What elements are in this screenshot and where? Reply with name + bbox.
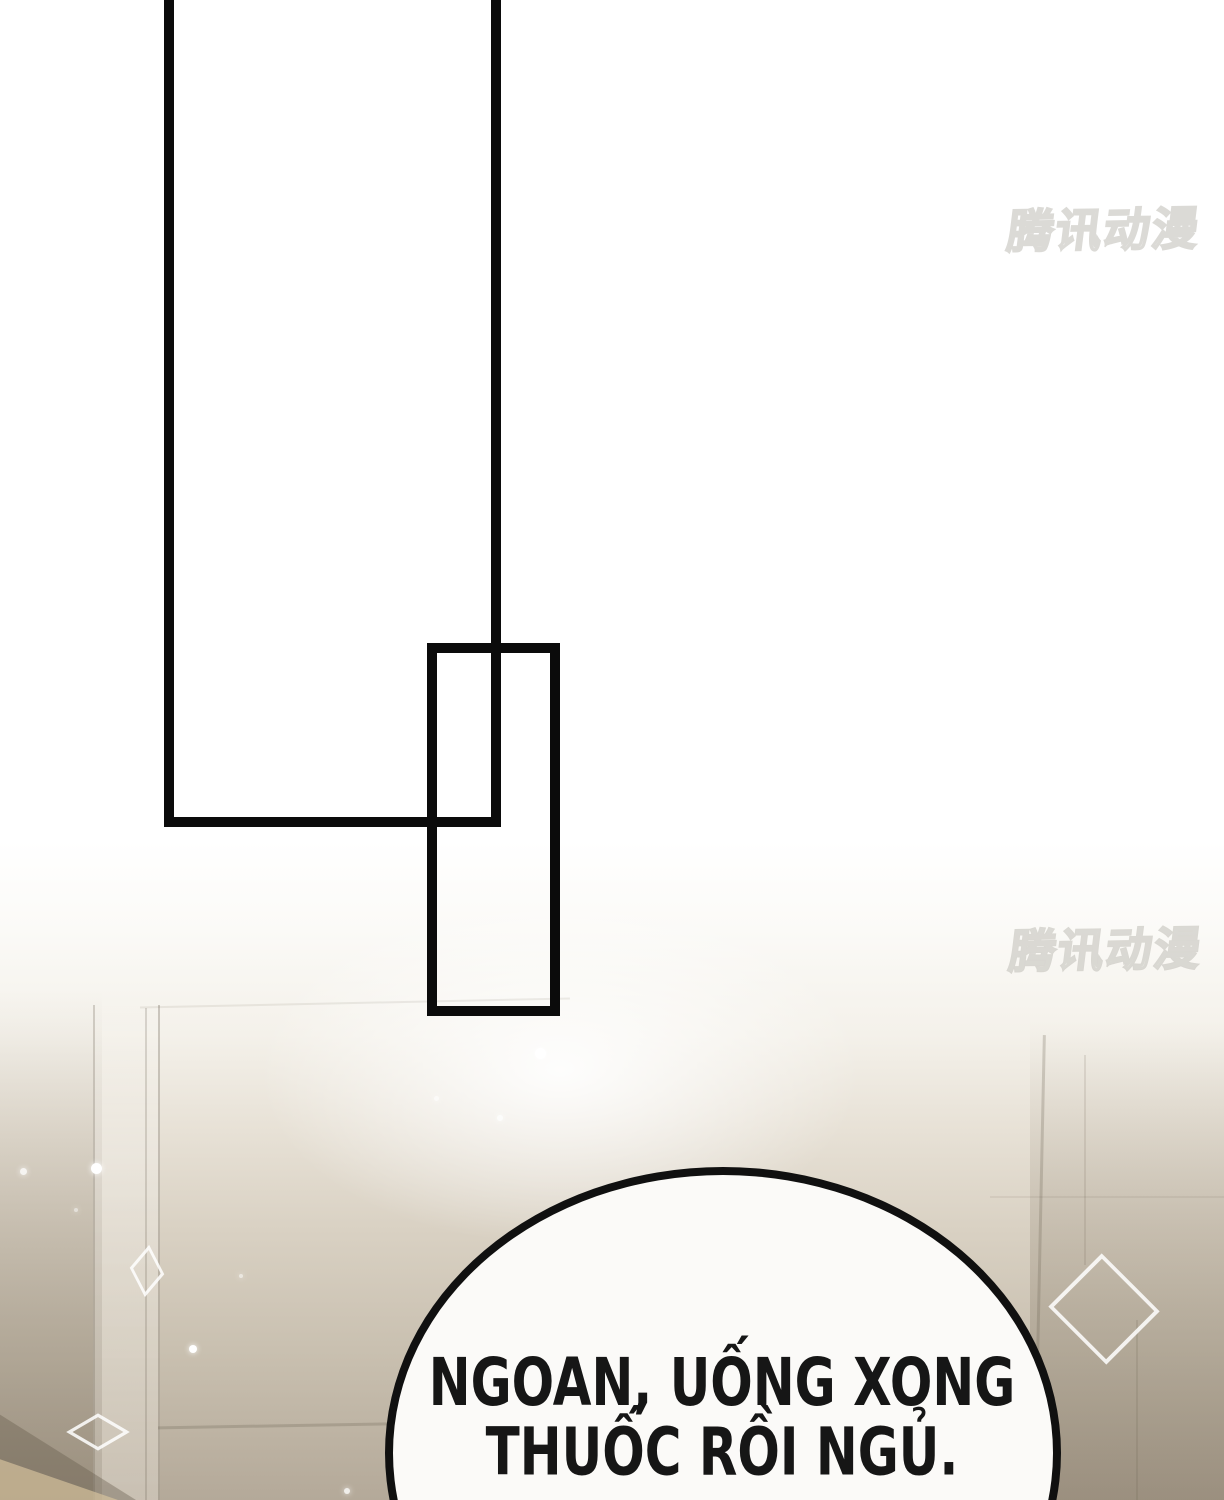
sparkle-dot bbox=[434, 1096, 439, 1101]
sparkle-dot bbox=[344, 1488, 350, 1494]
publisher-watermark: 腾讯动漫 bbox=[1004, 198, 1212, 261]
wall-seam-line bbox=[990, 1196, 1224, 1198]
sparkle-dot bbox=[74, 1208, 78, 1212]
sparkle-dot bbox=[239, 1274, 243, 1278]
sparkle-dot bbox=[91, 1163, 102, 1174]
publisher-watermark: 腾讯动漫 bbox=[1006, 918, 1214, 981]
speech-line-2: THUỐC RỒI NGỦ. bbox=[392, 1418, 1052, 1488]
wall-seam-line bbox=[1136, 1320, 1138, 1500]
sparkle-dot bbox=[535, 1048, 546, 1059]
sparkle-dot bbox=[497, 1115, 503, 1121]
speech-bubble-text: NGOAN, UỐNG XONG THUỐC RỒI NGỦ. bbox=[392, 1348, 1052, 1488]
sparkle-dot bbox=[20, 1168, 27, 1175]
comic-page: 腾讯动漫 腾讯动漫 NGOAN, UỐNG XONG THUỐC RỒI NGỦ… bbox=[0, 0, 1224, 1500]
wall-seam-line bbox=[1084, 1055, 1086, 1265]
sparkle-dot bbox=[189, 1345, 197, 1353]
speech-line-1: NGOAN, UỐNG XONG bbox=[392, 1348, 1052, 1418]
comic-panel-frame-small bbox=[427, 643, 560, 1016]
